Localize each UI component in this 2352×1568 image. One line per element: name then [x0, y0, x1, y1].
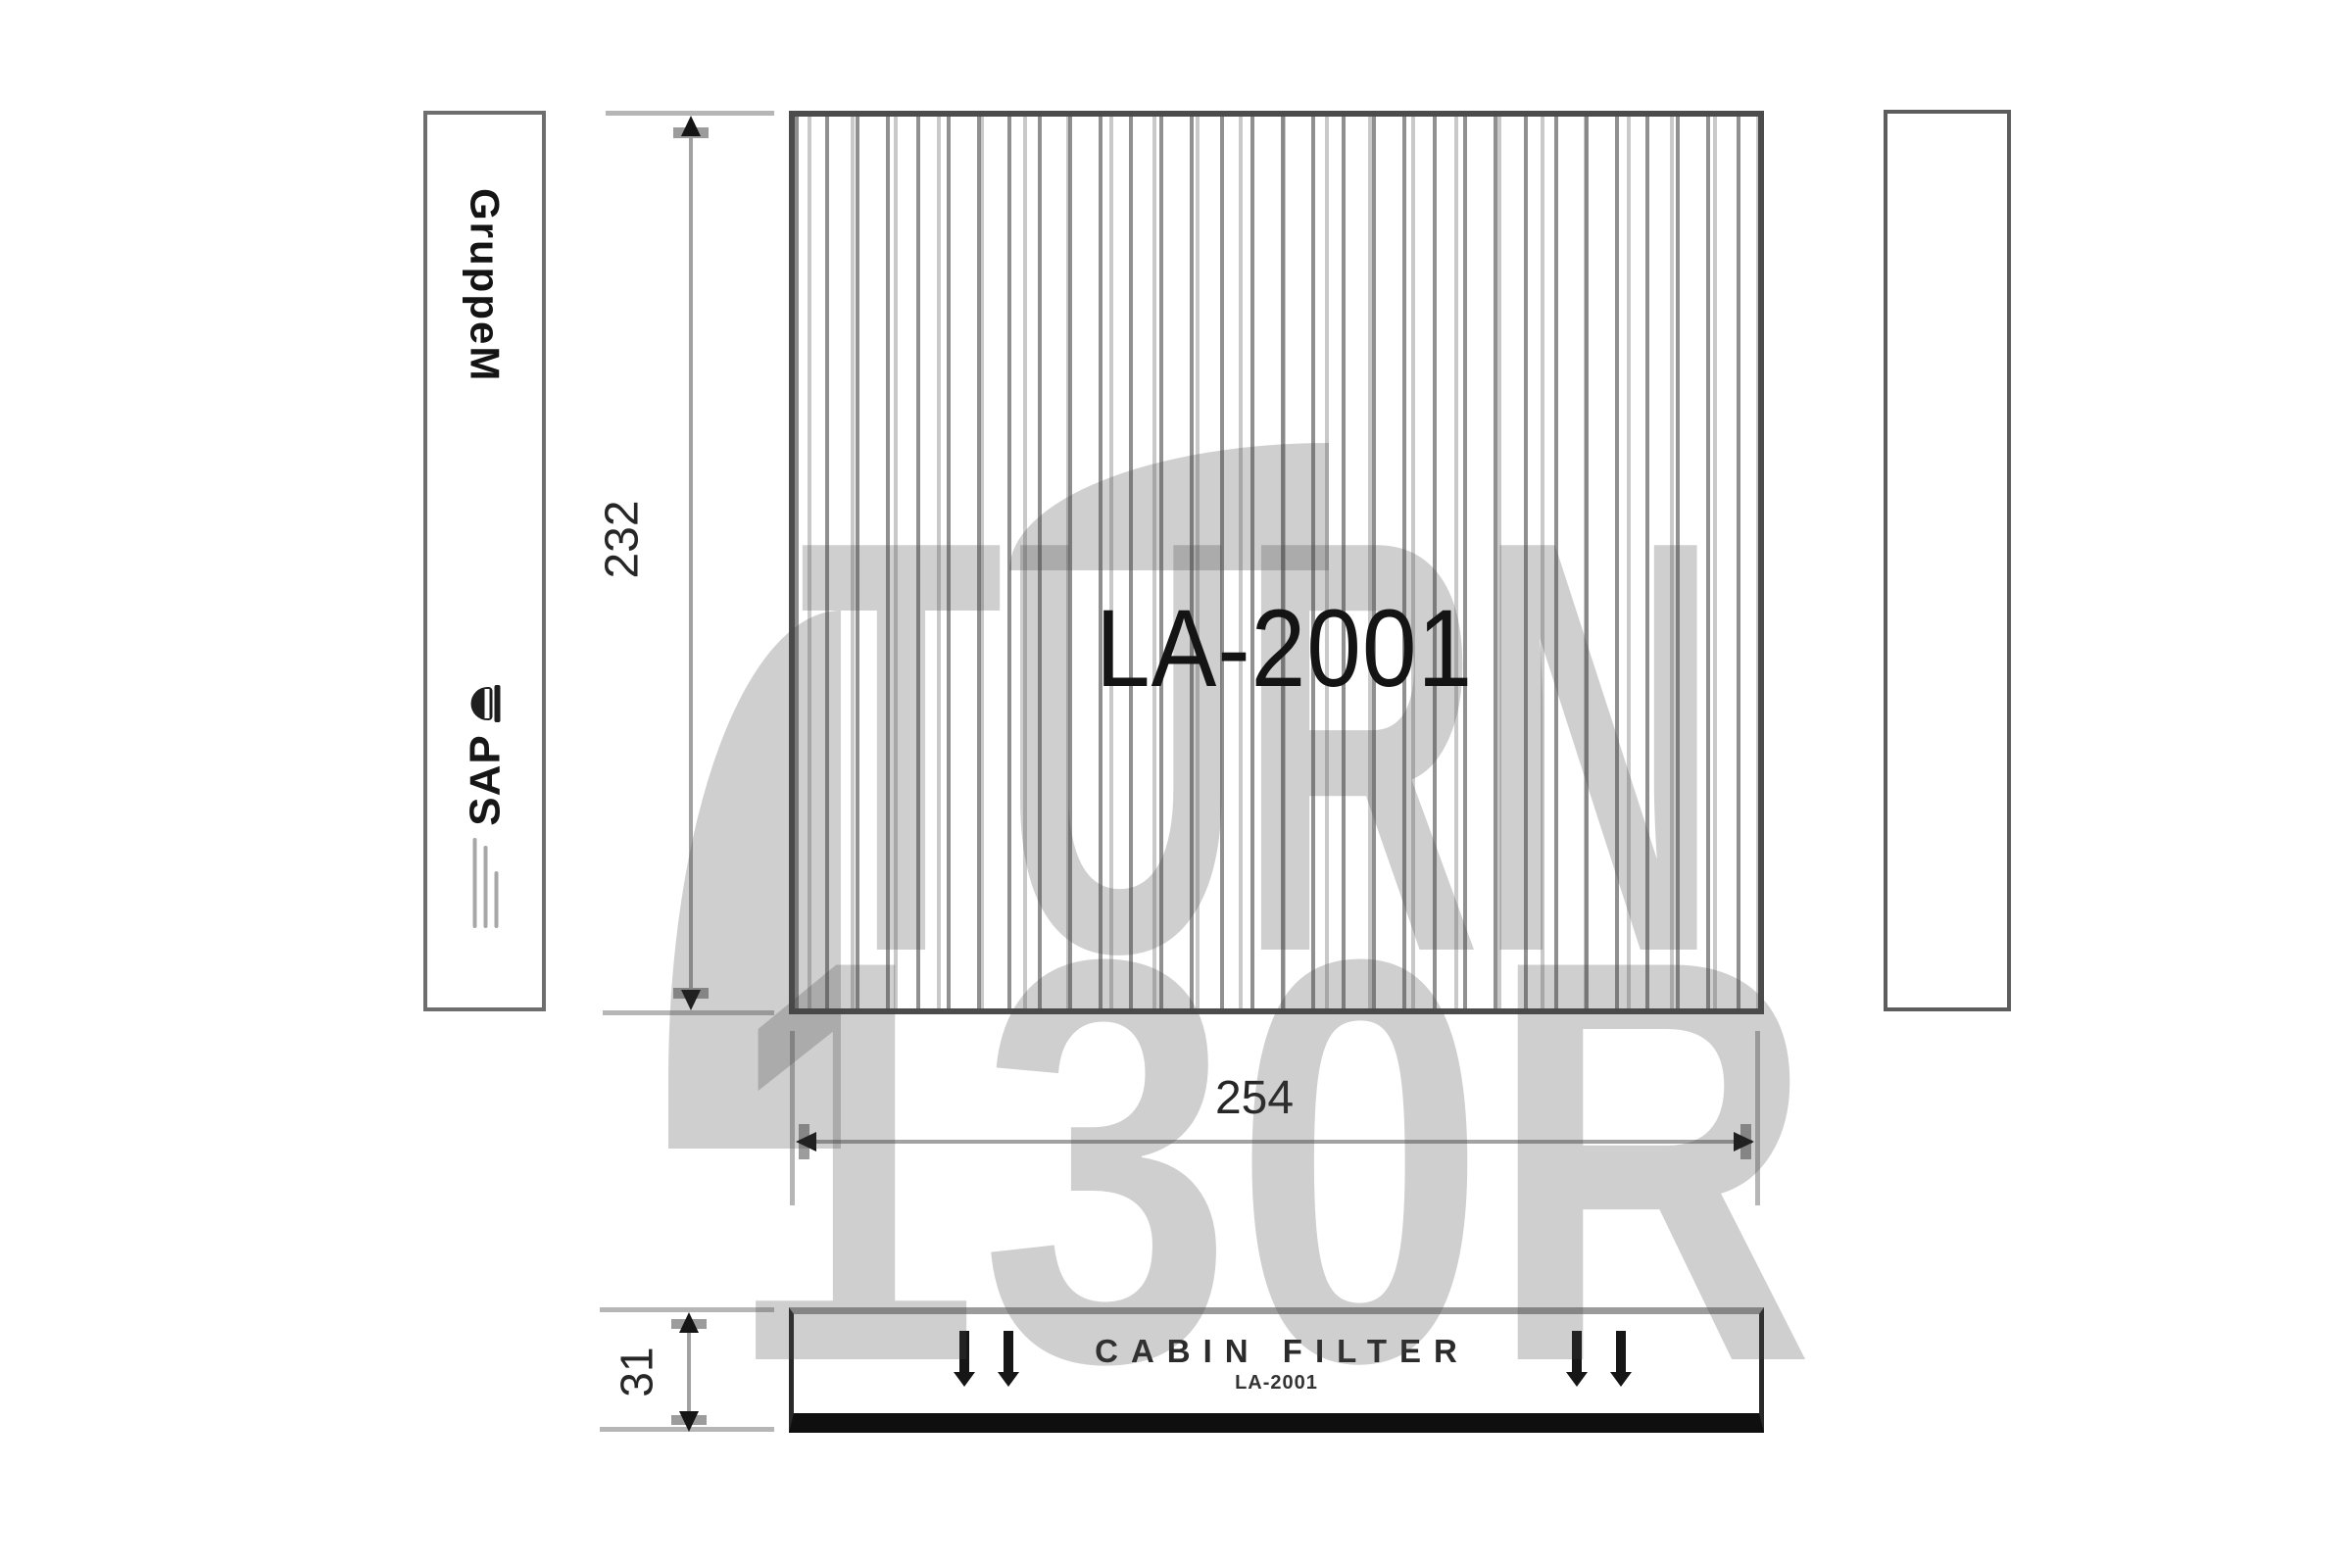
height-dimension-label: 232 — [571, 451, 673, 627]
down-arrow-icon — [954, 1331, 975, 1388]
arrowhead-up-icon — [681, 116, 701, 136]
down-arrow-icon — [998, 1331, 1019, 1388]
width-dimension-label: 254 — [1171, 1068, 1338, 1127]
fine-print-lines — [472, 838, 498, 928]
down-arrow-icon — [1566, 1331, 1588, 1388]
down-arrow-icon — [1610, 1331, 1632, 1388]
side-view-part-number: LA-2001 — [1235, 1372, 1318, 1395]
sap-cap-icon — [470, 685, 500, 722]
thickness-dimension-label: 31 — [588, 1325, 686, 1419]
arrowhead-left-icon — [796, 1132, 816, 1151]
right-end-strip — [1884, 110, 2011, 1011]
gruppem-brand-text: GruppeM — [462, 188, 509, 382]
airflow-arrows-left — [954, 1331, 1019, 1388]
arrowhead-down-icon — [679, 1411, 699, 1432]
thickness-dimension-line — [687, 1321, 691, 1423]
arrowhead-right-icon — [1734, 1132, 1754, 1151]
arrowhead-down-icon — [681, 990, 701, 1010]
cabin-filter-diagram: GruppeM SAP LA-2001 232 254 CABI — [0, 0, 2352, 1568]
brand-text-block: GruppeM — [423, 153, 546, 417]
width-dimension-line — [806, 1140, 1752, 1144]
sap-logo-text: SAP — [461, 734, 510, 825]
extension-line-left — [790, 1031, 795, 1205]
arrowhead-up-icon — [679, 1312, 699, 1333]
airflow-arrows-right — [1566, 1331, 1632, 1388]
part-number-label: LA-2001 — [1096, 586, 1473, 712]
height-dimension-line — [689, 123, 693, 1004]
side-view-title: CABIN FILTER — [1095, 1333, 1470, 1370]
cabin-filter-top-view-pleats — [789, 111, 1764, 1014]
extension-line-bottom — [603, 1010, 774, 1015]
extension-line-right — [1755, 1031, 1760, 1205]
sap-logo-block: SAP — [423, 635, 546, 978]
